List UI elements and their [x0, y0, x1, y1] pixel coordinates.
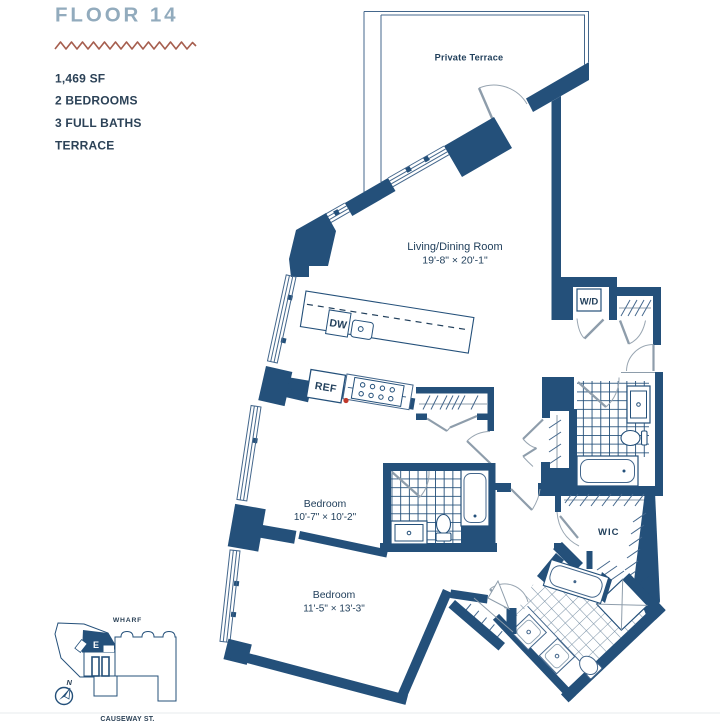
svg-text:W/D: W/D — [580, 297, 599, 308]
svg-text:Bedroom: Bedroom — [304, 498, 347, 510]
svg-text:10'-7" × 10'-2": 10'-7" × 10'-2" — [294, 512, 357, 523]
svg-text:FLOOR 14: FLOOR 14 — [55, 4, 178, 27]
svg-text:E: E — [93, 640, 99, 650]
svg-text:11'-5" × 13'-3": 11'-5" × 13'-3" — [303, 604, 365, 615]
svg-text:1,469 SF: 1,469 SF — [55, 72, 105, 86]
svg-text:N: N — [67, 678, 73, 687]
svg-text:WIC: WIC — [598, 527, 619, 538]
svg-text:Private Terrace: Private Terrace — [435, 53, 504, 63]
svg-text:Bedroom: Bedroom — [313, 589, 356, 601]
svg-text:19'-8" × 20'-1": 19'-8" × 20'-1" — [422, 255, 488, 267]
svg-text:CAUSEWAY ST.: CAUSEWAY ST. — [100, 716, 154, 723]
svg-text:TERRACE: TERRACE — [55, 139, 114, 153]
svg-text:Living/Dining Room: Living/Dining Room — [407, 241, 502, 253]
svg-text:3 FULL BATHS: 3 FULL BATHS — [55, 116, 142, 130]
svg-text:2 BEDROOMS: 2 BEDROOMS — [55, 94, 138, 108]
svg-text:WHARF: WHARF — [113, 617, 142, 624]
